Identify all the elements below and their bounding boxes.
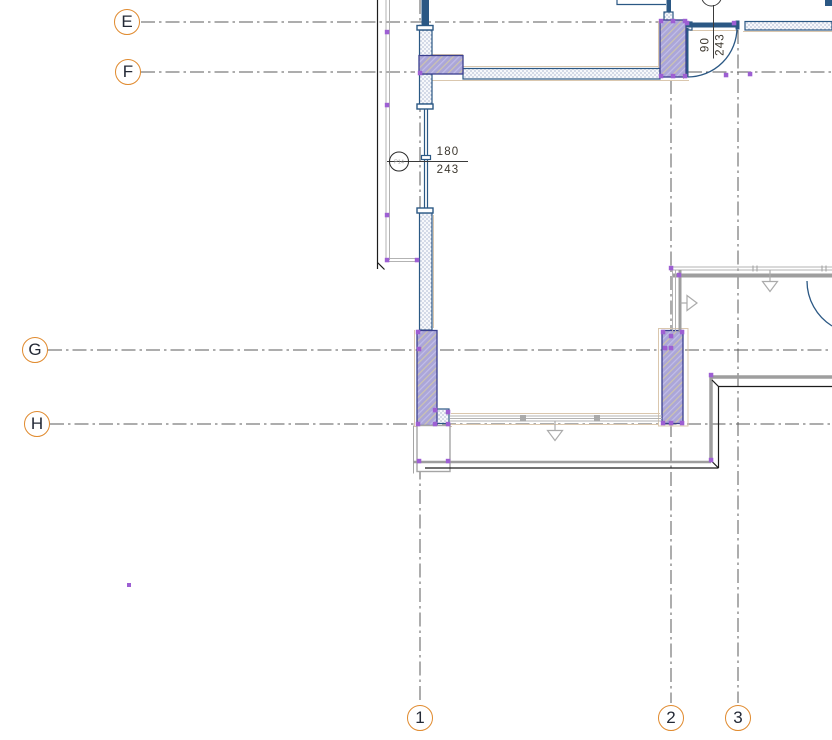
down-arrow-icon xyxy=(763,282,778,292)
column-mid-right[interactable] xyxy=(662,331,683,424)
door-header[interactable] xyxy=(686,23,737,28)
grid-lines[interactable] xyxy=(48,0,832,703)
grid-bubble-label: 2 xyxy=(666,708,675,727)
door-dim-under[interactable]: 243 xyxy=(714,29,727,61)
grid-bubble-G[interactable]: G xyxy=(22,337,48,363)
plan-geometry: P14 xyxy=(0,0,832,740)
grid-bubble-3[interactable]: 3 xyxy=(725,705,751,731)
window-dim-width[interactable]: 180 xyxy=(426,146,470,158)
stray-snap-point xyxy=(127,583,131,587)
grid-bubble-H[interactable]: H xyxy=(24,411,50,437)
stipple-walls[interactable] xyxy=(420,12,832,424)
top-right-wall[interactable] xyxy=(745,22,832,31)
grid-bubble-F[interactable]: F xyxy=(115,59,141,85)
column-top-right[interactable] xyxy=(660,20,686,77)
door-dim-width[interactable]: 90 xyxy=(700,29,713,61)
left-glazing-wall[interactable] xyxy=(386,0,418,262)
top-horizontal-wall[interactable] xyxy=(463,69,660,80)
grid-bubble-1[interactable]: 1 xyxy=(407,705,433,731)
wall-finish-outlines xyxy=(415,21,832,427)
window-dim-under[interactable]: 243 xyxy=(426,164,470,176)
grid-bubble-label: H xyxy=(31,414,43,433)
column-top-left[interactable] xyxy=(419,56,463,75)
right-arrow-icon xyxy=(687,296,697,311)
window-tag-label: P14 xyxy=(394,160,404,166)
down-arrow-icon xyxy=(548,431,563,441)
door-tag-circle[interactable] xyxy=(702,0,722,6)
terrace-corner-black[interactable] xyxy=(719,387,832,469)
grid-bubble-label: G xyxy=(28,340,41,359)
door-swing-right[interactable] xyxy=(807,281,832,326)
grid-bubble-E[interactable]: E xyxy=(114,9,140,35)
snap-points xyxy=(127,19,752,587)
grid-bubble-2[interactable]: 2 xyxy=(658,705,684,731)
left-slab-edge[interactable] xyxy=(378,0,385,270)
drawing-canvas[interactable]: P14 E F G H 1 2 3 180 243 90 243 xyxy=(0,0,832,740)
door-arcs[interactable] xyxy=(688,28,832,327)
grid-bubble-label: E xyxy=(121,12,132,31)
grid-bubble-label: 3 xyxy=(733,708,742,727)
terrace-corner-gray[interactable] xyxy=(711,377,832,461)
shaft-box[interactable] xyxy=(417,426,450,472)
lower-window-wall[interactable] xyxy=(450,416,662,421)
grid-bubble-label: F xyxy=(123,62,133,81)
grid-bubble-label: 1 xyxy=(415,708,424,727)
